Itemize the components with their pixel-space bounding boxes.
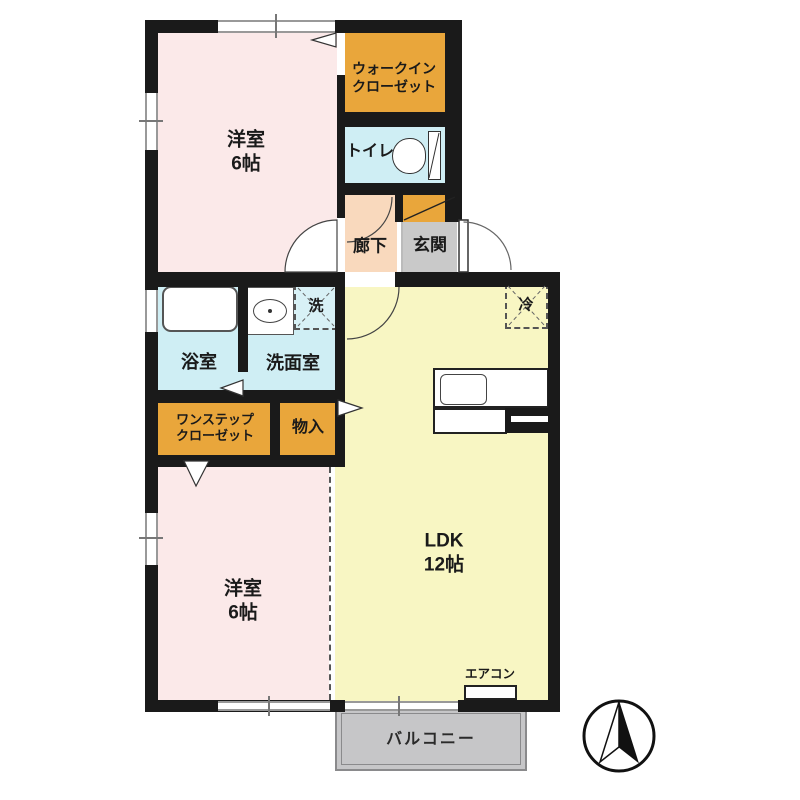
window-tick: [139, 120, 163, 122]
wall-segment: [458, 700, 558, 712]
balcony-label: バルコニー: [386, 730, 476, 750]
wall-segment: [337, 75, 345, 218]
wall-segment: [395, 195, 403, 222]
one-step-closet-label: ワンステップ クローゼット: [176, 412, 254, 445]
walk-in-closet-label: ウォークイン クローゼット: [352, 61, 436, 96]
front-door-leaf: [459, 220, 468, 272]
toilet-label: トイレ: [346, 142, 394, 162]
wall-segment: [145, 390, 345, 403]
toilet-tank: [428, 131, 441, 180]
wall-segment: [337, 112, 462, 127]
bedroom2-label: 洋室 6帖: [224, 577, 262, 625]
storage-label: 物入: [292, 418, 324, 438]
front-door-arc: [464, 222, 512, 270]
window: [218, 701, 330, 711]
wall-segment: [145, 455, 345, 467]
wic-doorway-gap: [337, 33, 345, 75]
kitchen-lower-counter: [433, 408, 507, 434]
washstand-drain-dot: [268, 309, 272, 313]
window-tick: [398, 696, 400, 716]
window: [145, 290, 158, 332]
wall-segment: [337, 183, 462, 195]
window-tick: [139, 537, 163, 539]
bedroom1-doorway-gap: [337, 218, 345, 272]
hallway-label: 廊下: [353, 235, 387, 256]
window-tick: [275, 14, 277, 38]
wall-segment: [335, 272, 345, 467]
wall-segment: [270, 395, 280, 458]
bathroom-label: 浴室: [181, 351, 217, 374]
room-name: 洋室: [227, 128, 265, 152]
kitchen-hatch-slit: [511, 416, 548, 422]
wall-segment: [238, 280, 248, 372]
bathtub: [162, 286, 238, 332]
wall-segment: [548, 272, 560, 712]
ldk-label: LDK 12帖: [424, 529, 464, 577]
refrigerator-pad-label: 冷: [518, 297, 533, 316]
room-name: 洋室: [224, 577, 262, 601]
entrance-label: 玄関: [413, 234, 447, 255]
ldk-doorway-threshold: [345, 272, 395, 287]
washroom-label: 洗面室: [266, 352, 320, 375]
air-conditioner-unit: [464, 685, 517, 700]
room-size: 6帖: [227, 152, 265, 176]
air-conditioner-label: エアコン: [465, 667, 515, 683]
floor-plan: 洋室 6帖 ウォークイン クローゼット トイレ 廊下 玄関 浴室 洗面室 洗 ワ…: [0, 0, 800, 800]
sliding-partition-dashed: [329, 467, 335, 700]
wall-segment: [395, 272, 558, 287]
room-size: 6帖: [224, 601, 262, 625]
toilet-bowl: [392, 138, 426, 174]
entrance-step-line: [401, 220, 403, 273]
ldk-floor: [340, 280, 552, 705]
window-tick: [268, 696, 270, 716]
laundry-pad-label: 洗: [308, 298, 323, 317]
window: [145, 513, 158, 565]
kitchen-sink: [440, 374, 487, 405]
north-arrow-icon: [584, 701, 654, 771]
bedroom1-label: 洋室 6帖: [227, 128, 265, 176]
room-name: LDK: [424, 529, 464, 553]
room-size: 12帖: [424, 553, 464, 577]
window: [345, 701, 458, 711]
